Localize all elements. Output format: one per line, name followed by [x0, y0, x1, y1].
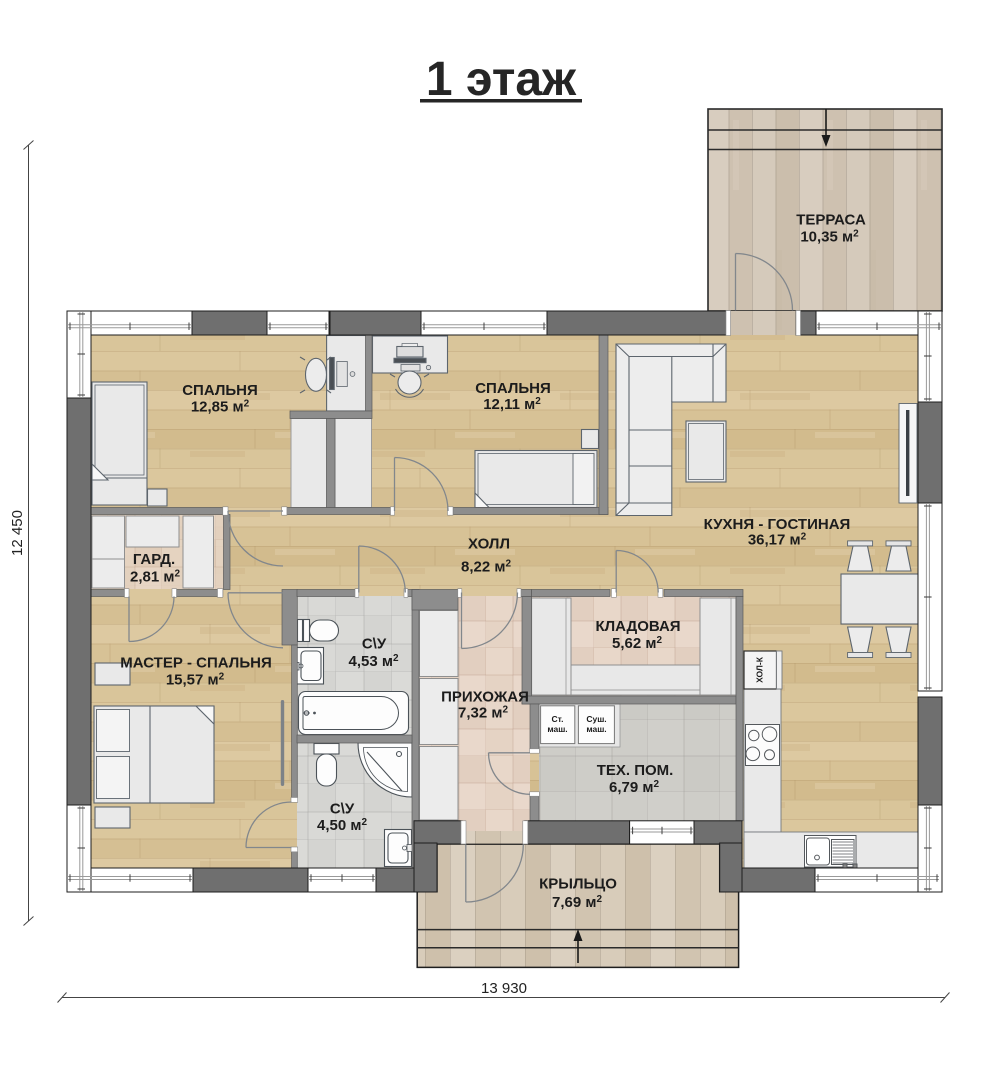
svg-text:2,81 м2: 2,81 м2: [130, 568, 180, 585]
svg-text:4,50 м2: 4,50 м2: [317, 817, 367, 834]
svg-text:7,32 м2: 7,32 м2: [458, 704, 508, 721]
svg-text:С\У: С\У: [330, 800, 355, 817]
svg-text:С\У: С\У: [362, 635, 387, 652]
svg-text:12 450: 12 450: [9, 510, 26, 556]
svg-text:15,57 м2: 15,57 м2: [166, 671, 225, 688]
svg-text:ГАРД.: ГАРД.: [133, 551, 175, 568]
svg-text:5,62 м2: 5,62 м2: [612, 635, 662, 652]
svg-text:ПРИХОЖАЯ: ПРИХОЖАЯ: [441, 688, 529, 705]
svg-text:Суш.: Суш.: [586, 714, 606, 724]
svg-text:36,17 м2: 36,17 м2: [748, 532, 807, 549]
svg-text:13 930: 13 930: [481, 980, 527, 997]
svg-text:КЛАДОВАЯ: КЛАДОВАЯ: [595, 618, 680, 635]
svg-text:12,85 м2: 12,85 м2: [191, 398, 250, 415]
svg-text:12,11 м2: 12,11 м2: [483, 396, 541, 413]
svg-text:ХОЛЛ: ХОЛЛ: [468, 535, 510, 552]
svg-text:СПАЛЬНЯ: СПАЛЬНЯ: [475, 380, 551, 397]
svg-text:10,35 м2: 10,35 м2: [800, 228, 859, 245]
svg-text:8,22 м2: 8,22 м2: [461, 558, 511, 575]
svg-text:Ст.: Ст.: [552, 714, 564, 724]
svg-text:1 этаж: 1 этаж: [426, 53, 577, 106]
svg-text:маш.: маш.: [547, 724, 567, 734]
svg-text:7,69 м2: 7,69 м2: [552, 894, 602, 911]
svg-text:ТЕРРАСА: ТЕРРАСА: [796, 211, 866, 228]
svg-text:4,53 м2: 4,53 м2: [348, 653, 398, 670]
svg-text:СПАЛЬНЯ: СПАЛЬНЯ: [182, 382, 258, 399]
svg-text:6,79 м2: 6,79 м2: [609, 779, 659, 796]
svg-text:КУХНЯ - ГОСТИНАЯ: КУХНЯ - ГОСТИНАЯ: [704, 516, 851, 533]
svg-text:ТЕХ. ПОМ.: ТЕХ. ПОМ.: [597, 762, 674, 779]
svg-text:МАСТЕР - СПАЛЬНЯ: МАСТЕР - СПАЛЬНЯ: [120, 654, 271, 671]
svg-text:ХОЛ-К: ХОЛ-К: [755, 656, 765, 683]
svg-text:маш.: маш.: [586, 724, 606, 734]
svg-text:КРЫЛЬЦО: КРЫЛЬЦО: [539, 875, 617, 892]
